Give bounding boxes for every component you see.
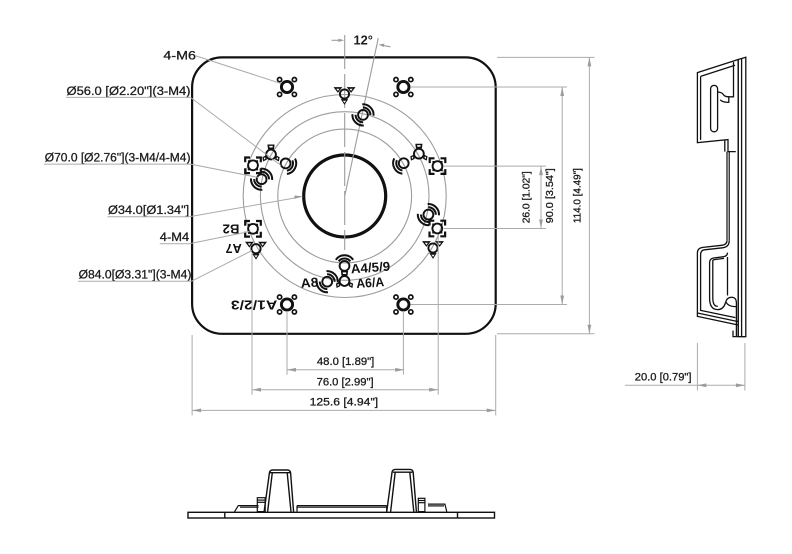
svg-text:12°: 12° <box>354 33 373 48</box>
svg-text:20.0 [0.79"]: 20.0 [0.79"] <box>635 372 692 384</box>
svg-text:114.0 [4.49"]: 114.0 [4.49"] <box>573 168 584 223</box>
svg-text:125.6 [4.94"]: 125.6 [4.94"] <box>310 397 379 409</box>
svg-text:A6/A: A6/A <box>356 274 385 291</box>
svg-text:4-M4: 4-M4 <box>160 230 190 244</box>
svg-text:Ø56.0 [Ø2.20"](3-M4): Ø56.0 [Ø2.20"](3-M4) <box>67 84 191 98</box>
svg-text:A4/5/9: A4/5/9 <box>350 259 390 277</box>
svg-text:90.0 [3.54"]: 90.0 [3.54"] <box>545 168 556 223</box>
svg-text:A1/2/3: A1/2/3 <box>231 298 277 313</box>
svg-text:Ø34.0[Ø1.34"]: Ø34.0[Ø1.34"] <box>108 203 189 217</box>
svg-text:Ø70.0 [Ø2.76"](3-M4/4-M4): Ø70.0 [Ø2.76"](3-M4/4-M4) <box>45 151 191 165</box>
svg-text:A7: A7 <box>226 241 242 256</box>
svg-text:4-M6: 4-M6 <box>163 48 196 62</box>
svg-text:48.0 [1.89"]: 48.0 [1.89"] <box>317 356 374 368</box>
svg-text:Ø84.0[Ø3.31"](3-M4): Ø84.0[Ø3.31"](3-M4) <box>79 268 192 282</box>
svg-text:A8: A8 <box>300 275 319 291</box>
svg-text:26.0 [1.02"]: 26.0 [1.02"] <box>522 171 533 223</box>
svg-text:76.0 [2.99"]: 76.0 [2.99"] <box>317 377 374 389</box>
